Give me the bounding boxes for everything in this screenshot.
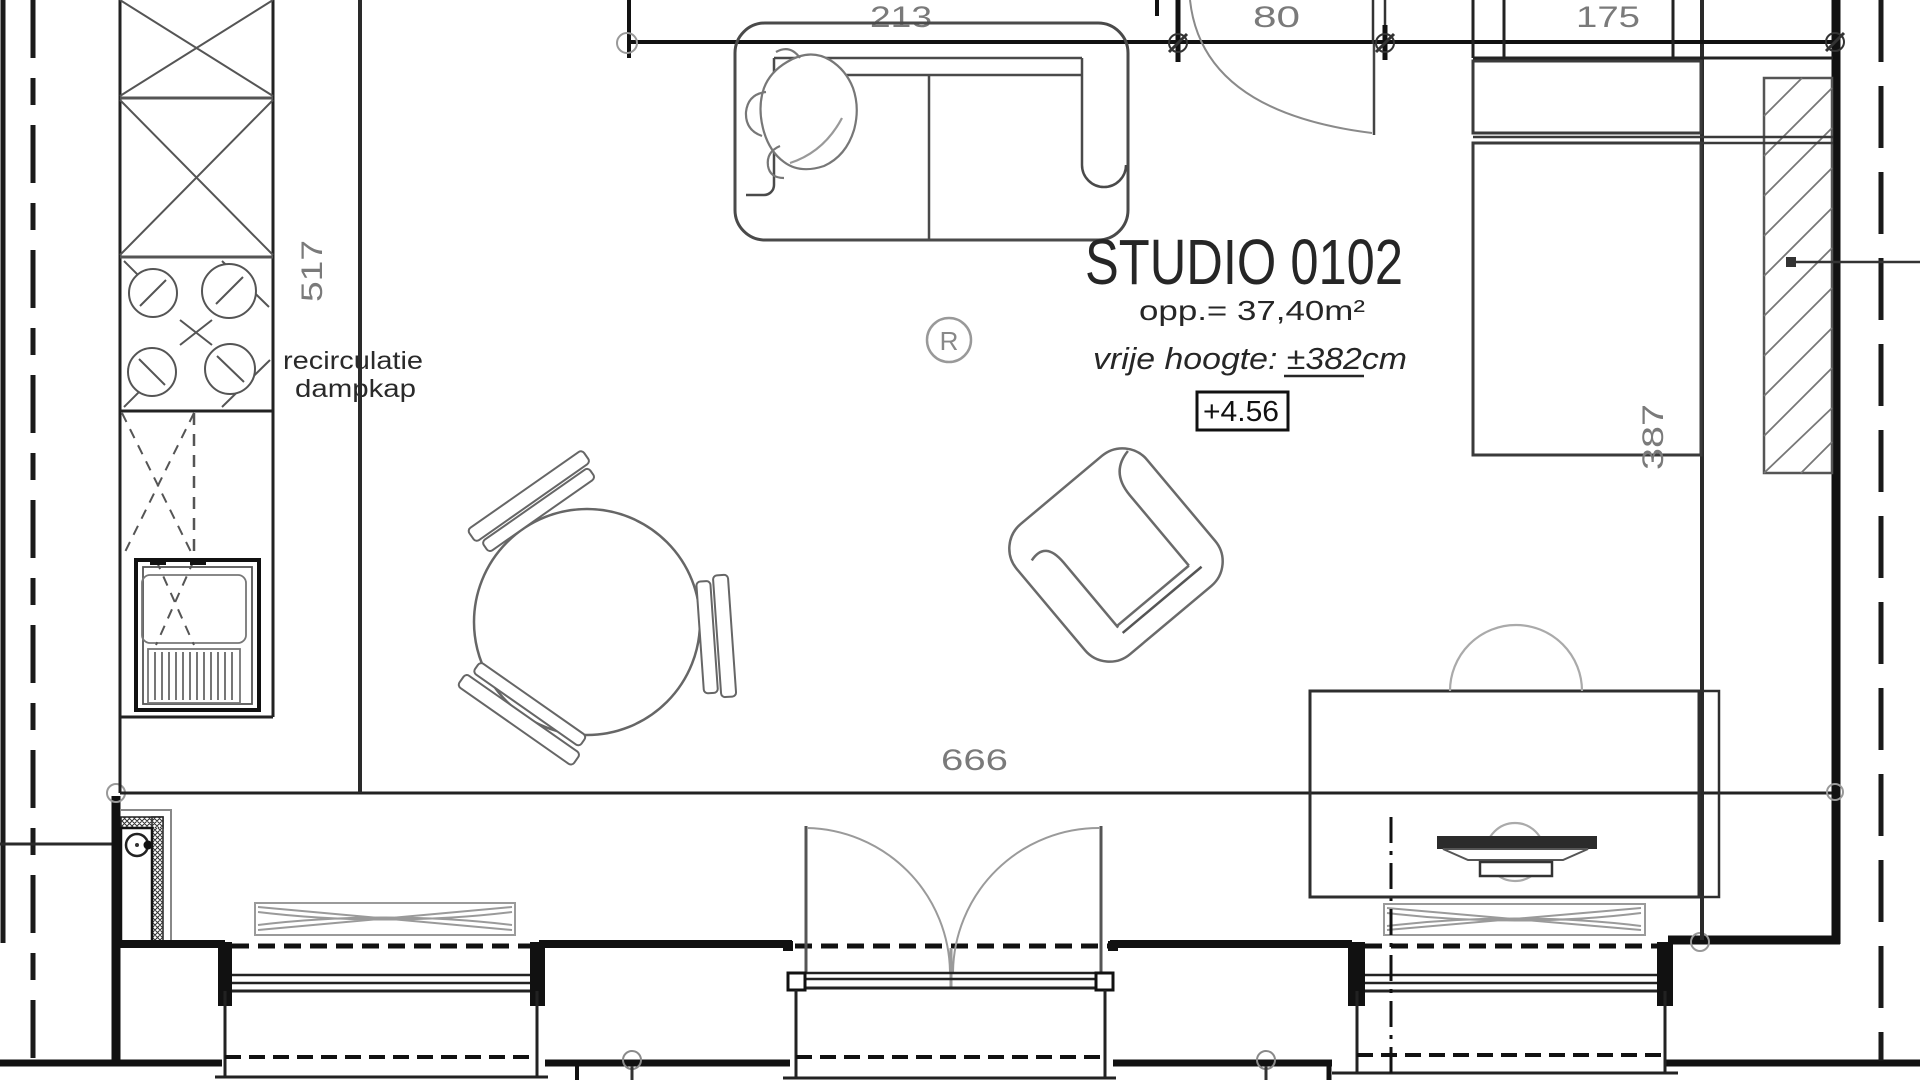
svg-text:175: 175 xyxy=(1576,1,1640,34)
svg-text:+4.56: +4.56 xyxy=(1203,396,1279,428)
svg-text:dampkap: dampkap xyxy=(295,375,416,403)
svg-text:517: 517 xyxy=(296,240,329,302)
svg-text:vrije hoogte: ±382cm: vrije hoogte: ±382cm xyxy=(1093,341,1407,376)
svg-text:recirculatie: recirculatie xyxy=(283,347,423,375)
svg-text:R: R xyxy=(940,326,959,356)
svg-text:387: 387 xyxy=(1637,404,1670,470)
svg-text:666: 666 xyxy=(941,744,1008,777)
svg-text:213: 213 xyxy=(870,1,932,34)
svg-text:STUDIO 0102: STUDIO 0102 xyxy=(1085,226,1403,298)
svg-text:80: 80 xyxy=(1253,1,1300,34)
svg-text:opp.= 37,40m²: opp.= 37,40m² xyxy=(1139,295,1365,326)
